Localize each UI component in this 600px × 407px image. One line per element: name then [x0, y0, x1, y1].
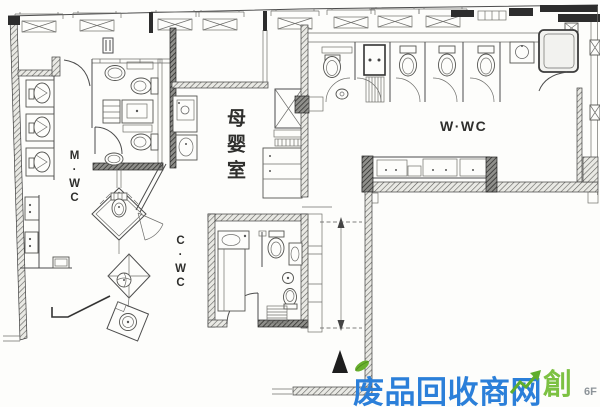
- label-mother-baby-room: 母婴室: [225, 108, 244, 186]
- door-arc: [95, 127, 122, 154]
- diagonal-pods: [92, 162, 166, 341]
- floorplan-page: 母婴室 W·WC M·WC C·WC 废品回收商网 創意 6F: [0, 0, 600, 407]
- lower-cabinets: [20, 195, 72, 268]
- sink: [510, 42, 534, 63]
- watermark-site-name: 废品回收商网: [353, 367, 542, 407]
- sink-counter: [218, 231, 249, 249]
- toilet: [268, 231, 284, 258]
- utility-room: [539, 30, 578, 91]
- north-arrow-icon: [332, 350, 348, 373]
- handrail: [52, 296, 110, 317]
- label-mens-wc: M·WC: [68, 150, 80, 206]
- mens-wc-area: [18, 57, 110, 317]
- watermark-brand: 創意: [543, 361, 600, 407]
- label-childrens-wc: C·WC: [174, 235, 186, 291]
- mullion-wall: [263, 11, 267, 31]
- column-symbol: [103, 38, 113, 53]
- vanity-counter: [372, 157, 490, 178]
- bottom-wall: [362, 182, 598, 192]
- toilet: [478, 46, 495, 76]
- womens-wc-area: [322, 6, 600, 203]
- service-shaft: [308, 214, 322, 332]
- label-womens-wc: W·WC: [440, 119, 487, 133]
- door-arc: [64, 60, 90, 86]
- cabinet-counter: [263, 148, 302, 198]
- sink-counter: [173, 96, 197, 160]
- left-exterior-wall: [3, 16, 27, 341]
- childrens-wc-room: [208, 214, 322, 332]
- changing-bench: [218, 249, 245, 311]
- pod-toilet: [111, 193, 127, 217]
- toilet: [439, 46, 456, 76]
- wall-sink: [289, 243, 302, 265]
- dimension-line: [320, 217, 362, 331]
- toilet: [400, 46, 417, 76]
- accessible-wc-room: [92, 59, 170, 170]
- stall-fixtures: [26, 80, 54, 176]
- door-fan: [138, 213, 163, 240]
- fan-symbol: [117, 273, 131, 287]
- watermark-floor-tag: 6F: [584, 386, 597, 398]
- floorplan-drawing: [0, 0, 600, 407]
- mullion-wall: [149, 12, 153, 33]
